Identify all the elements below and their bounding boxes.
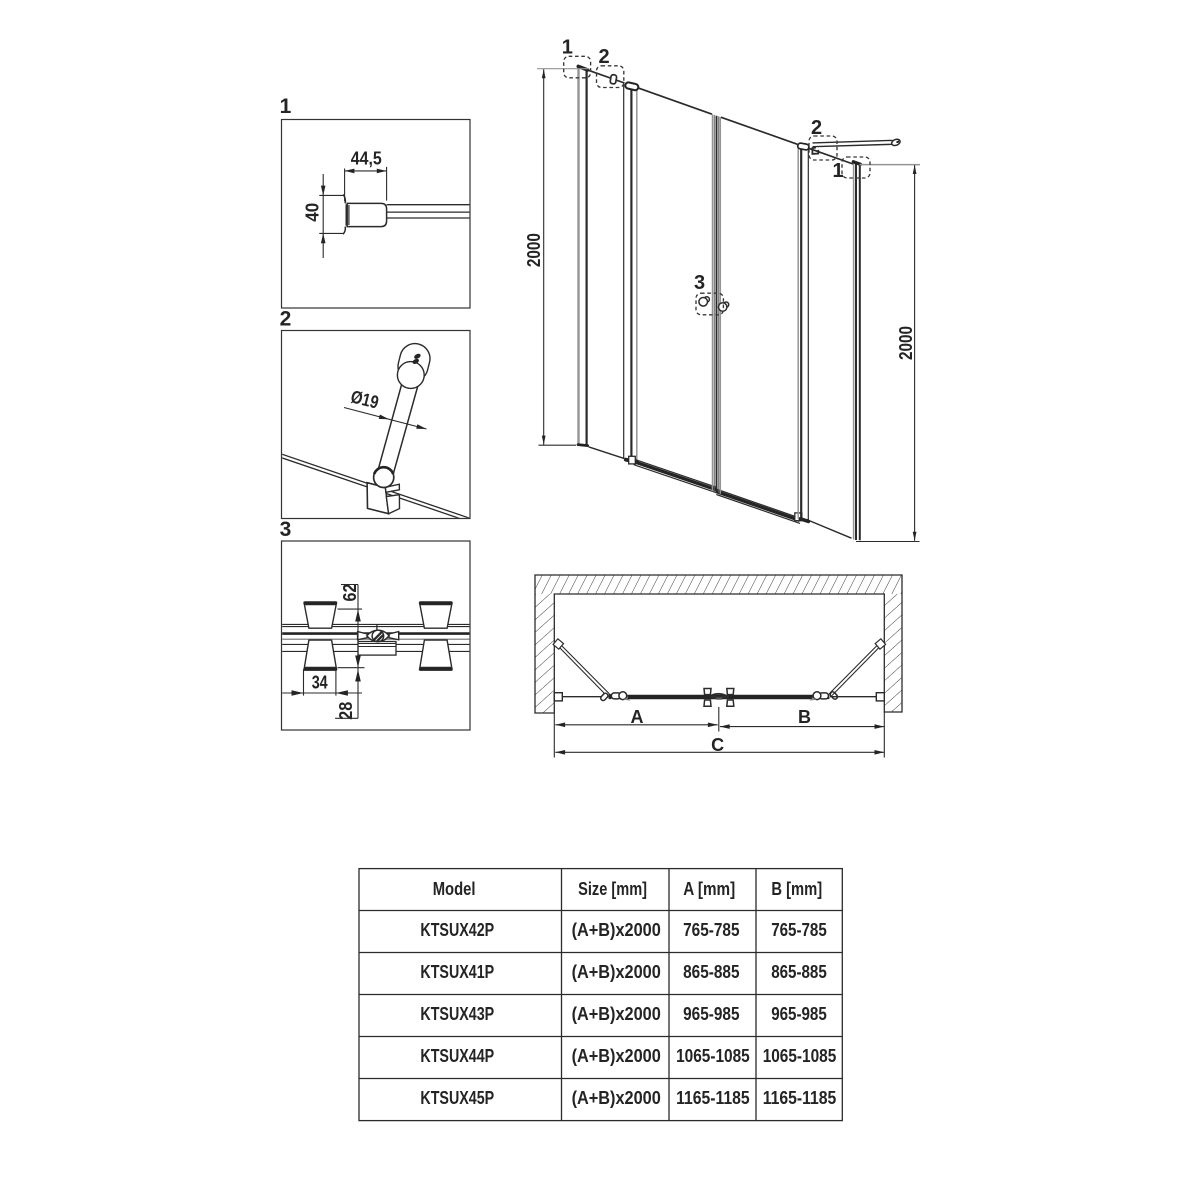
svg-text:3: 3 [694,272,705,294]
svg-text:40: 40 [302,203,322,222]
svg-text:KTSUX41P: KTSUX41P [420,962,494,982]
svg-text:(A+B)x2000: (A+B)x2000 [572,1046,661,1066]
svg-text:1165-1185: 1165-1185 [676,1088,750,1108]
svg-text:Size [mm]: Size [mm] [578,879,647,899]
svg-text:Model: Model [433,879,476,899]
svg-text:2: 2 [598,46,609,68]
svg-text:(A+B)x2000: (A+B)x2000 [572,962,661,982]
svg-text:62: 62 [340,584,360,602]
svg-text:865-885: 865-885 [683,962,739,982]
svg-text:B: B [798,707,811,727]
svg-text:KTSUX43P: KTSUX43P [420,1004,494,1024]
svg-text:(A+B)x2000: (A+B)x2000 [572,1088,661,1108]
svg-text:28: 28 [336,702,356,720]
svg-text:965-985: 965-985 [683,1004,739,1024]
svg-text:2000: 2000 [524,233,544,267]
svg-text:3: 3 [280,518,292,541]
svg-text:1165-1185: 1165-1185 [763,1088,837,1108]
svg-text:34: 34 [312,673,328,693]
svg-text:(A+B)x2000: (A+B)x2000 [572,1004,661,1024]
svg-text:765-785: 765-785 [771,920,827,940]
svg-text:1: 1 [280,95,292,118]
svg-text:KTSUX42P: KTSUX42P [420,920,494,940]
svg-text:965-985: 965-985 [771,1004,827,1024]
svg-text:A [mm]: A [mm] [683,879,735,899]
svg-text:2000: 2000 [896,326,916,360]
svg-text:2: 2 [280,308,292,331]
svg-text:1065-1085: 1065-1085 [763,1046,837,1066]
svg-text:KTSUX45P: KTSUX45P [420,1088,494,1108]
svg-text:KTSUX44P: KTSUX44P [420,1046,494,1066]
svg-text:(A+B)x2000: (A+B)x2000 [572,920,661,940]
svg-text:1: 1 [562,37,573,59]
svg-text:1065-1085: 1065-1085 [676,1046,750,1066]
svg-text:765-785: 765-785 [683,920,739,940]
svg-text:B [mm]: B [mm] [771,879,822,899]
svg-text:44,5: 44,5 [351,149,382,169]
svg-text:865-885: 865-885 [771,962,827,982]
svg-text:A: A [631,707,644,727]
